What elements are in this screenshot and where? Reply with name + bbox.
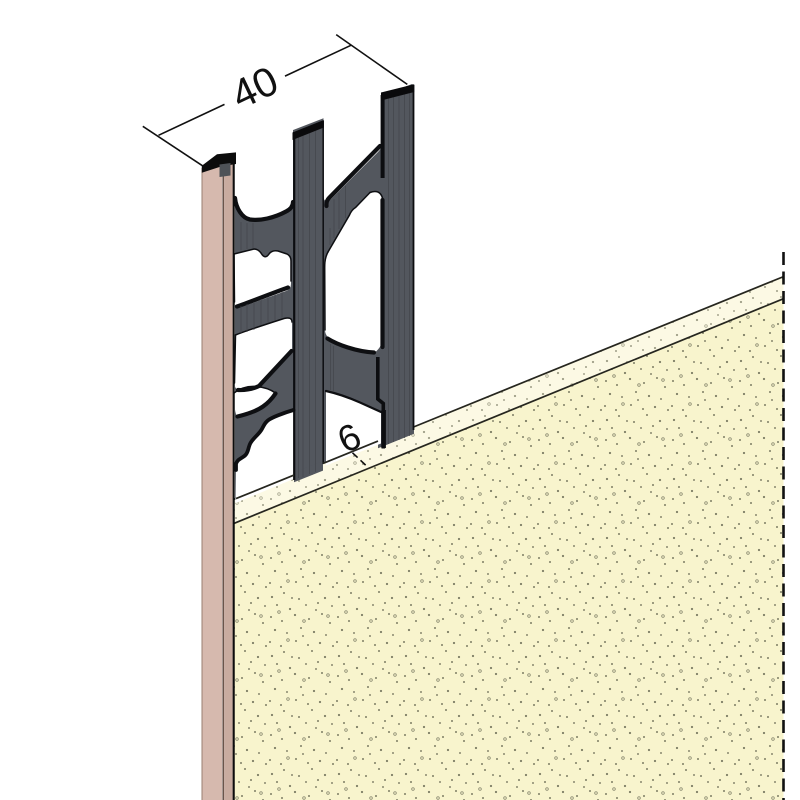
svg-text:40: 40 [224, 57, 285, 118]
